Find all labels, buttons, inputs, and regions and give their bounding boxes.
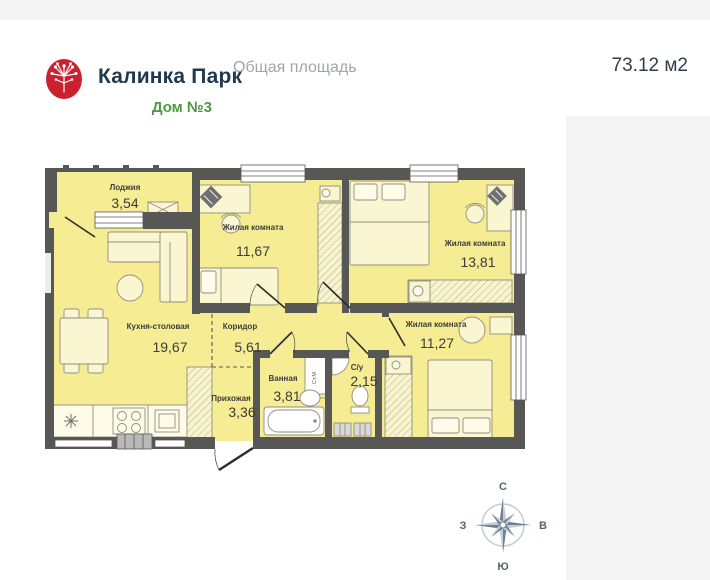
room-label-hallway: Прихожая [211,394,251,403]
room-label-living1: Жилая комната [222,223,284,232]
brand-title: Калинка Парк [98,65,218,89]
room-area-kitchen: 19,67 [152,339,187,355]
room-area-living2: 13,81 [460,254,495,270]
brand-logo-icon[interactable] [46,59,82,99]
compass-star [475,497,531,553]
room-label-living2: Жилая комната [444,239,506,248]
total-area-label: Общая площадь [233,59,357,77]
room-area-corridor: 5,61 [234,339,261,355]
room-area-wc: 2,15 [350,373,377,389]
header: Калинка Парк Дом №3 Общая площадь 73.12 … [0,20,710,116]
room-label-bathroom: Ванная [268,374,297,383]
room-area-living3: 11,27 [420,335,454,351]
floor-plan: Лоджия 3,54 Жилая комната 11,67 Жилая ко… [35,160,535,472]
room-area-loggia: 3,54 [111,195,138,211]
compass-east-label: В [539,520,547,532]
house-subtitle: Дом №3 [98,99,212,116]
room-label-loggia: Лоджия [110,183,141,192]
compass-south-label: Ю [497,561,508,573]
right-gray-panel [566,68,710,580]
compass-rose: С Ю З В [455,477,555,577]
room-label-wc: С/у [351,363,364,372]
room-label-kitchen: Кухня-столовая [127,322,190,331]
room-area-hallway: 3,36 [228,404,255,420]
washing-machine-label: Ст.М [312,372,318,384]
page-top-strip [0,0,710,20]
room-label-living3: Жилая комната [405,320,467,329]
room-area-bathroom: 3,81 [273,388,300,404]
room-label-corridor: Коридор [223,322,258,331]
compass-west-label: З [460,520,467,532]
total-area-value: 73.12 м2 [612,55,688,77]
room-area-living1: 11,67 [236,243,270,259]
compass-north-label: С [499,481,507,493]
